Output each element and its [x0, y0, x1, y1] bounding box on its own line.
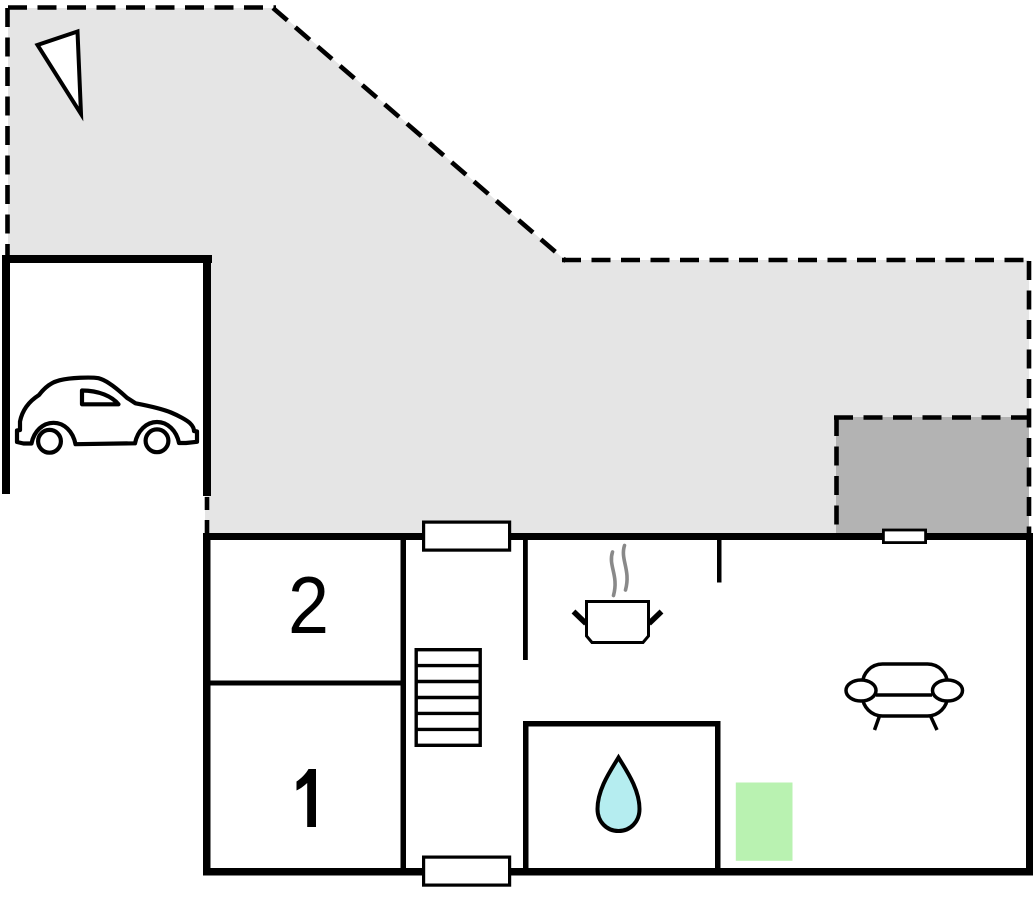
svg-text:2: 2: [288, 561, 329, 651]
